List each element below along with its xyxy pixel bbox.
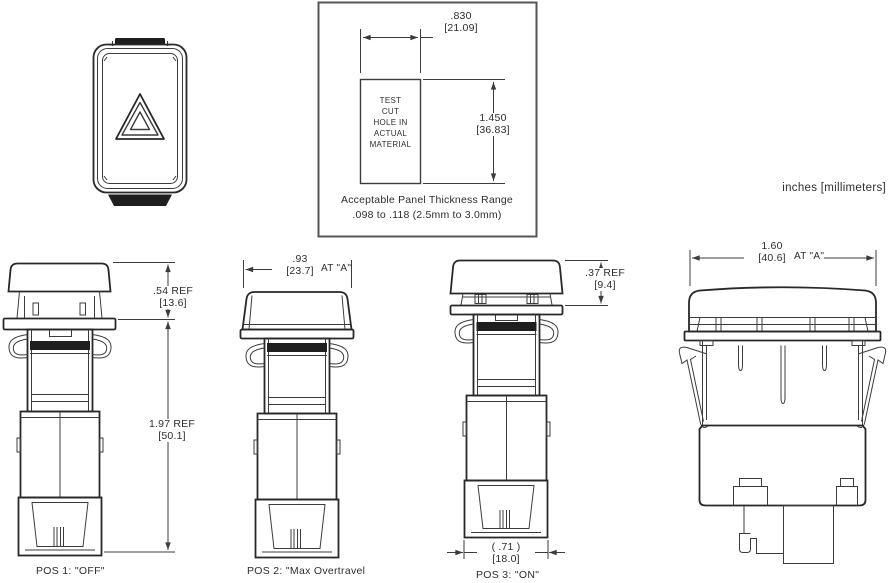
- units-note: inches [millimeters]: [758, 182, 886, 194]
- pos2-caption: POS 2: "Max Overtravel: [247, 565, 365, 577]
- button-outer-frame: [94, 45, 187, 193]
- cutout-width-dim-label: .830 [21.09]: [430, 11, 492, 34]
- pos1-button-height-dim: .54 REF [13.6]: [144, 286, 202, 309]
- note-line-1: Acceptable Panel Thickness Range: [323, 193, 531, 208]
- pos1-caption: POS 1: "OFF": [36, 565, 105, 577]
- pos3-button-height-dim: .37 REF [9.4]: [578, 268, 632, 291]
- line-art: [0, 0, 888, 583]
- cutout-width-mm: [21.09]: [430, 23, 492, 35]
- pos3-bottom-width-dim: ( .71 ) [18.0]: [477, 542, 535, 565]
- pos2-at-a-label: AT "A": [321, 263, 351, 274]
- side-view: [679, 250, 885, 564]
- cutout-height-dim-label: 1.450 [36.83]: [464, 113, 522, 136]
- cutout-height-in: 1.450: [464, 113, 522, 125]
- front-view-switch: [94, 38, 187, 206]
- test-cut-hole-label: TEST CUT HOLE IN ACTUAL MATERIAL: [361, 95, 420, 150]
- pos2-width-dim: .93 [23.7]: [272, 254, 328, 277]
- side-at-a-label: AT "A": [794, 251, 824, 262]
- cutout-width-in: .830: [430, 11, 492, 23]
- panel-thickness-note: Acceptable Panel Thickness Range .098 to…: [323, 193, 531, 223]
- pos1-total-height-dim: 1.97 REF [50.1]: [143, 419, 201, 442]
- note-line-2: .098 to .118 (2.5mm to 3.0mm): [323, 208, 531, 223]
- hazard-triangle-icon: [116, 94, 164, 139]
- side-width-dim: 1.60 [40.6]: [744, 241, 800, 264]
- cutout-height-mm: [36.83]: [464, 125, 522, 137]
- pos3-caption: POS 3: "ON": [476, 569, 539, 581]
- pos2-view: [241, 260, 354, 558]
- switch-dimensional-drawing: .830 [21.09] 1.450 [36.83] TEST CUT HOLE…: [0, 0, 888, 583]
- pos3-view: [447, 261, 608, 560]
- left-spring-clip: [679, 347, 708, 427]
- bottom-tab: [108, 195, 172, 207]
- lamp-terminals: [739, 346, 827, 404]
- right-spring-clip: [857, 347, 886, 427]
